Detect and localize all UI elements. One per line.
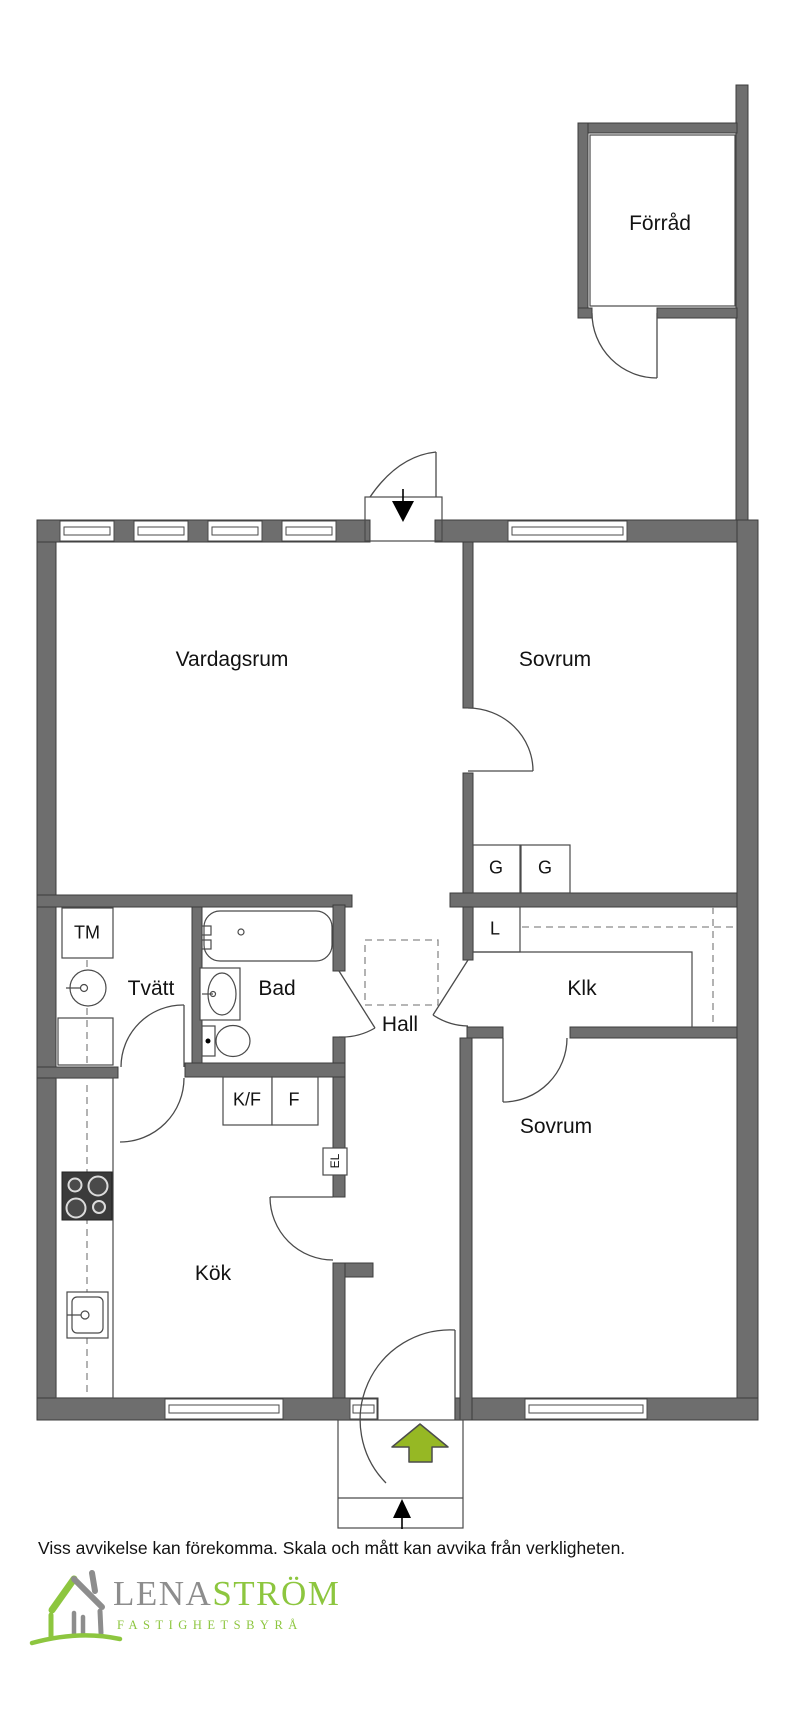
window [508,521,627,541]
window [282,521,336,541]
fixture-label-g2: G [538,858,552,879]
logo-name-green: STRÖM [212,1574,340,1613]
main-entrance-arrow-icon [392,1424,448,1462]
stove-icon [62,1172,112,1220]
vardagsrum-south-wall [37,895,352,907]
room-label-bad: Bad [258,977,295,1001]
room-label-vardagsrum: Vardagsrum [176,648,289,672]
room-label-sovrum-bottom: Sovrum [520,1115,592,1139]
room-label-kok: Kök [195,1262,231,1286]
walls [37,85,758,1420]
window [60,521,114,541]
room-label-klk: Klk [567,977,596,1001]
kitchen-sink-icon [67,1292,108,1338]
kok-door [270,1197,333,1260]
floorplan-page: Förråd Vardagsrum Sovrum Sovrum Kök Hall… [0,0,800,1710]
toilet-icon [202,1026,250,1057]
washbasin-icon [200,968,240,1020]
vestibule-arrow-icon [393,1499,411,1529]
window [165,1399,283,1419]
tvatt-door [120,1005,184,1142]
logo-name: LENASTRÖM [113,1574,340,1614]
disclaimer-text: Viss avvikelse kan förekomma. Skala och … [38,1538,625,1559]
dashed-guides [87,907,737,1392]
bad-door [339,971,375,1037]
corridor-wall [736,85,748,520]
sovrum-top-door [468,708,533,771]
room-label-hall: Hall [382,1013,418,1037]
fixture-label-kf: K/F [233,1090,261,1111]
dryer-box [58,1018,113,1065]
logo-name-gray: LENA [113,1574,212,1613]
room-label-sovrum-top: Sovrum [519,648,591,672]
window [350,1399,377,1419]
fixture-label-l: L [490,919,500,940]
floorplan-drawing [0,0,800,1710]
laundry-sink-icon [66,970,106,1006]
window [208,521,262,541]
hall-dashed-square [365,940,438,1005]
bathtub-icon [202,911,332,961]
logo-subtitle: FASTIGHETSBYRÅ [117,1618,303,1633]
kitchen-counter [56,1078,113,1398]
entrance-arrows [392,489,448,1529]
fixture-label-el: EL [328,1154,342,1169]
cabinets-and-outlines [56,135,735,1528]
window [134,521,188,541]
room-label-tvatt: Tvätt [128,977,175,1001]
fixture-label-g1: G [489,858,503,879]
fixture-label-f: F [289,1090,300,1111]
forrad-door [592,313,657,378]
window [525,1399,647,1419]
fixture-label-tm: TM [74,923,100,944]
top-entrance-arrow-icon [392,489,414,522]
room-label-forrad: Förråd [629,212,691,236]
sovrum-bottom-door [503,1038,567,1102]
divider-wall-top [463,542,473,708]
agency-logo: LENASTRÖM FASTIGHETSBYRÅ [0,1560,420,1650]
sovrum2-west-wall [460,1038,472,1420]
